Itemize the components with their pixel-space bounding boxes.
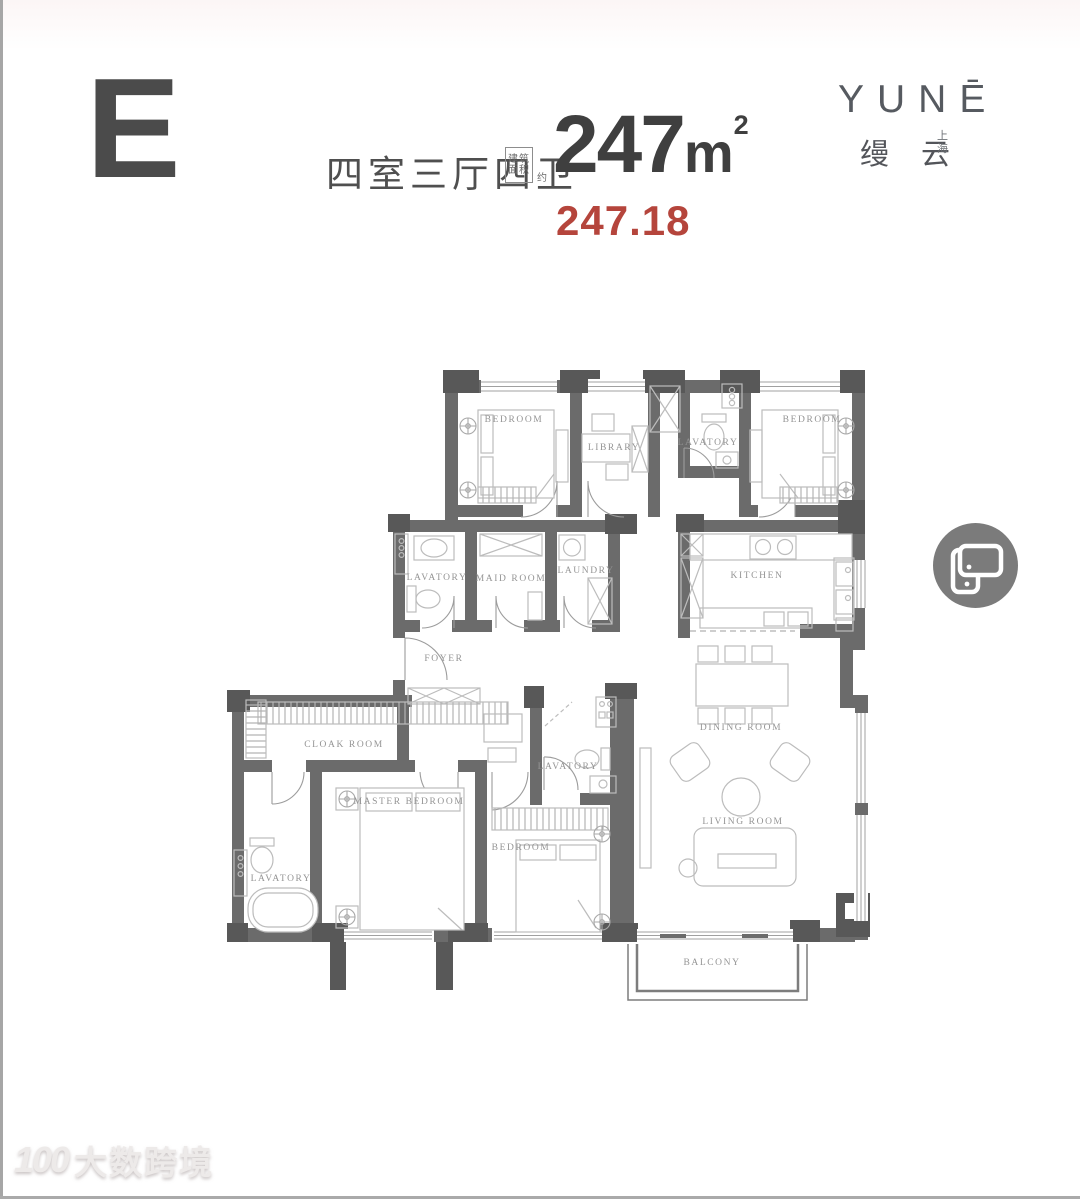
floorplan-drawing: BEDROOM LIBRARY LAVATORY BEDROOM LAVATOR… [0,0,1080,1199]
room-label-lavatory-top: LAVATORY [678,438,739,448]
room-label-dining-room: DINING ROOM [700,723,782,733]
room-label-lavatory-master: LAVATORY [251,874,312,884]
rotate-device-icon[interactable] [933,523,1018,608]
room-label-bedroom-top-left: BEDROOM [485,415,544,425]
room-label-lavatory-bedroom: LAVATORY [538,762,599,772]
room-label-foyer: FOYER [424,654,463,664]
room-label-balcony: BALCONY [683,958,740,968]
watermark: 100 大数跨境 [14,1136,214,1184]
room-label-lavatory-mid: LAVATORY [407,573,468,583]
balcony-outline [628,944,807,1000]
room-label-library: LIBRARY [588,443,640,453]
room-label-living-room: LIVING ROOM [702,817,783,827]
room-label-maid-room: MAID ROOM [476,574,547,584]
room-label-master-bedroom: MASTER BEDROOM [354,797,465,807]
room-label-bedroom-bottom: BEDROOM [492,843,551,853]
room-label-bedroom-top-right: BEDROOM [783,415,842,425]
watermark-logo: 100 [14,1139,68,1181]
watermark-text: 大数跨境 [74,1136,214,1184]
floorplan-page: E 四室三厅四卫 建筑 面积 约 247m2 247.18 YUNĒ 缦 云 上… [0,0,1080,1199]
room-label-kitchen: KITCHEN [731,571,784,581]
room-label-cloak-room: CLOAK ROOM [304,740,384,750]
room-label-laundry: LAUNDRY [557,566,614,576]
